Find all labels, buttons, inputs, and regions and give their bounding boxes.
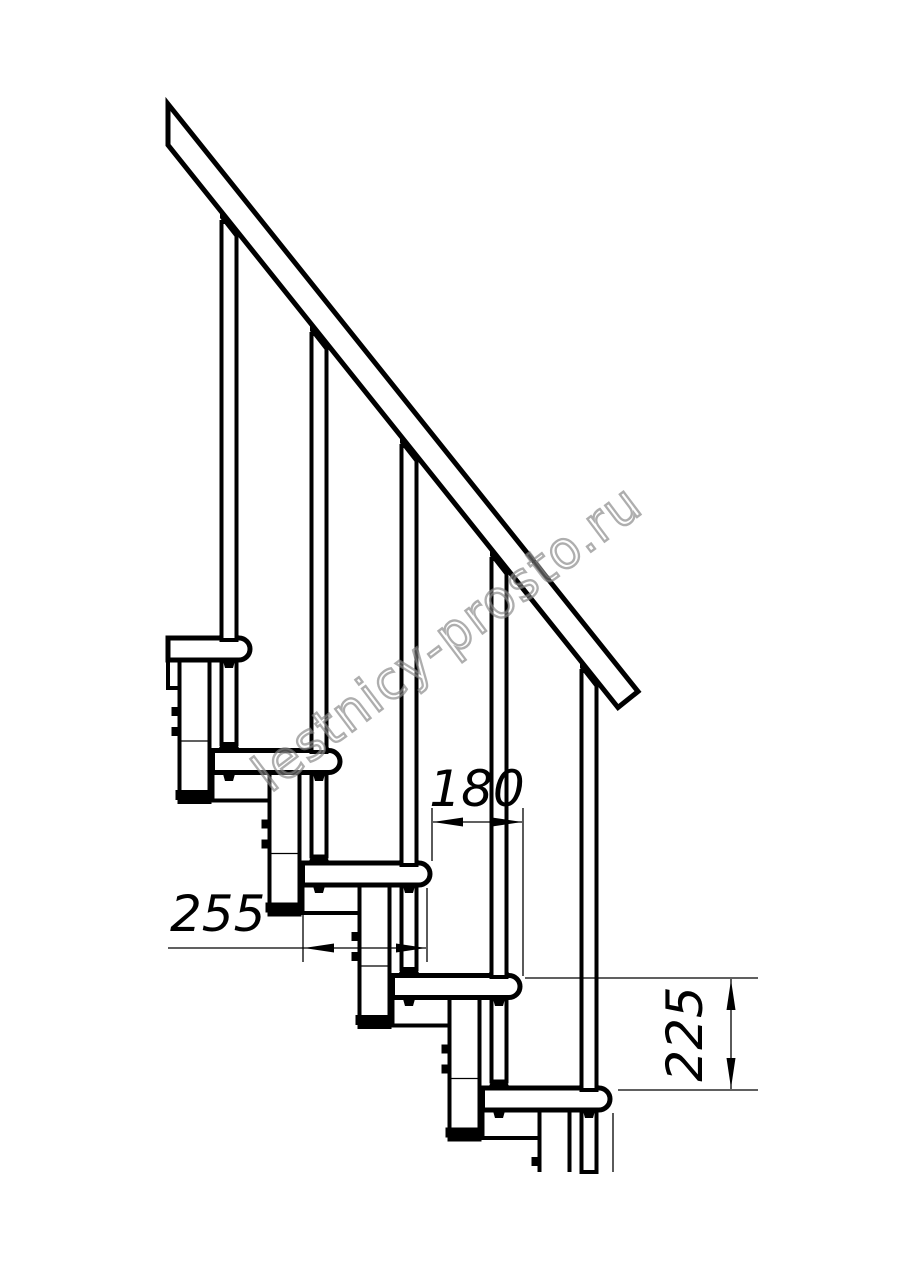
arrow-up [727,980,736,1010]
support-module-4 [393,998,484,1140]
baluster-1 [222,222,237,640]
support-tube-2 [312,771,327,857]
dimension-run-value: 180 [429,760,524,818]
arrow-down [727,1058,736,1088]
arrow-left [433,818,463,827]
dimension-run: 180 [429,760,524,976]
support-module-1 [168,660,214,802]
support-module-3 [303,885,394,1027]
dimension-rise-value: 225 [656,986,714,1081]
support-tube-3 [402,883,417,969]
arrow-left [304,944,334,953]
drawing-sheet: 180 255 225 lestnicy-prosto.ru [0,0,914,1280]
baluster-5 [582,671,597,1090]
support-tube-1 [222,658,237,744]
baluster-2 [312,334,327,752]
support-tube-4 [492,996,507,1082]
staircase-diagram: 180 255 225 lestnicy-prosto.ru [0,0,914,1280]
dimension-rise: 225 [525,978,758,1090]
dimension-depth-value: 255 [170,885,265,943]
